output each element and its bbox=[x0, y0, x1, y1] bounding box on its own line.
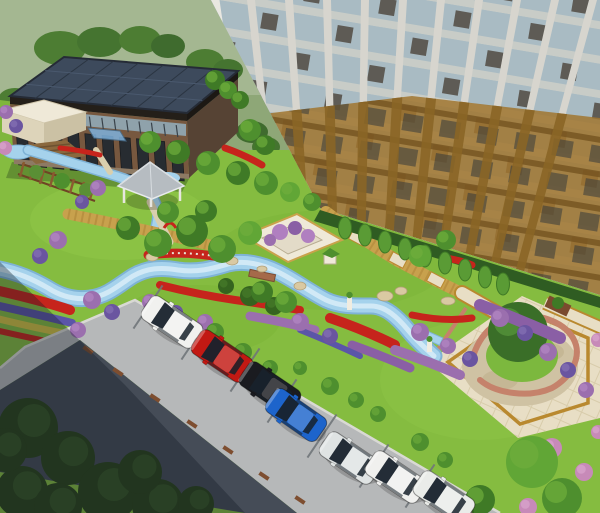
columnar-tree bbox=[339, 217, 352, 239]
tower-spandrel-panel bbox=[378, 0, 396, 16]
bush-highlight bbox=[562, 364, 570, 372]
bush-highlight bbox=[541, 345, 550, 354]
boulder bbox=[441, 297, 455, 305]
planter-flowers bbox=[288, 221, 302, 235]
tree-highlight bbox=[256, 173, 269, 186]
tower-spandrel-panel bbox=[260, 12, 278, 30]
planter-shrub bbox=[552, 297, 564, 309]
brick-window bbox=[583, 178, 600, 198]
columnar-tree bbox=[459, 259, 472, 281]
aerial-rendering bbox=[0, 0, 600, 513]
garden-lamp bbox=[347, 297, 352, 310]
bush-highlight bbox=[220, 280, 228, 288]
boulder bbox=[257, 266, 267, 272]
bush-highlight bbox=[51, 233, 60, 242]
dark-tree-highlight bbox=[190, 490, 210, 510]
garden-lamp-top bbox=[346, 292, 352, 298]
brick-window bbox=[534, 239, 557, 259]
tree-highlight bbox=[141, 133, 153, 145]
tower-spandrel-panel bbox=[367, 65, 385, 83]
tree-highlight bbox=[178, 217, 196, 235]
bush-highlight bbox=[294, 362, 301, 369]
planter-flowers bbox=[264, 234, 276, 246]
bush-highlight bbox=[76, 196, 83, 203]
tree-highlight bbox=[232, 92, 242, 102]
brick-window bbox=[401, 113, 424, 133]
tree-highlight bbox=[240, 223, 253, 236]
boulder bbox=[294, 282, 306, 290]
bush-highlight bbox=[85, 293, 94, 302]
tree-highlight bbox=[159, 203, 171, 215]
bush-highlight bbox=[519, 327, 527, 335]
rendering-viewport bbox=[0, 0, 600, 513]
bush-highlight bbox=[493, 311, 502, 320]
tree-highlight bbox=[304, 194, 314, 204]
pergola-vine bbox=[54, 173, 70, 189]
pergola-vine bbox=[29, 165, 43, 179]
canopy-blob bbox=[151, 34, 185, 58]
columnar-tree bbox=[379, 231, 392, 253]
boulder bbox=[395, 287, 407, 295]
bush-highlight bbox=[592, 334, 599, 341]
planter-flowers bbox=[301, 229, 315, 243]
bush-highlight bbox=[464, 353, 472, 361]
bush-highlight bbox=[413, 325, 422, 334]
bush-highlight bbox=[372, 408, 380, 416]
garden-lamp bbox=[427, 341, 432, 352]
bush-highlight bbox=[413, 435, 422, 444]
tree-highlight bbox=[438, 232, 449, 243]
brick-window bbox=[396, 147, 419, 167]
flower-bed-red bbox=[412, 315, 472, 319]
columnar-tree bbox=[439, 252, 452, 274]
bush-highlight bbox=[592, 426, 599, 433]
bush-highlight bbox=[577, 465, 586, 474]
bush-highlight bbox=[350, 394, 358, 402]
boulder bbox=[377, 291, 393, 301]
tree-highlight bbox=[545, 481, 567, 503]
tree-highlight bbox=[253, 283, 265, 295]
dark-tree-highlight bbox=[18, 404, 51, 437]
tree-highlight bbox=[510, 440, 539, 469]
tree-highlight bbox=[411, 247, 423, 259]
bush-highlight bbox=[323, 379, 332, 388]
tree-highlight bbox=[198, 153, 211, 166]
bush-highlight bbox=[10, 120, 17, 127]
columnar-tree bbox=[479, 266, 492, 288]
columnar-tree bbox=[497, 273, 510, 295]
tree-highlight bbox=[277, 293, 289, 305]
tree-highlight bbox=[207, 72, 218, 83]
columnar-tree bbox=[359, 224, 372, 246]
canopy-blob bbox=[77, 27, 123, 57]
bush-highlight bbox=[439, 454, 447, 462]
bush-highlight bbox=[442, 340, 450, 348]
tree-highlight bbox=[146, 231, 161, 246]
tree-highlight bbox=[241, 121, 253, 133]
bush-highlight bbox=[293, 315, 302, 324]
bush-highlight bbox=[72, 324, 80, 332]
brick-window bbox=[572, 245, 595, 265]
tree-highlight bbox=[168, 142, 181, 155]
tower-spandrel-panel bbox=[453, 10, 471, 28]
dark-tree-highlight bbox=[59, 436, 89, 466]
bush-highlight bbox=[521, 500, 530, 509]
brick-window bbox=[577, 212, 600, 232]
bush-highlight bbox=[324, 330, 332, 338]
tower-spandrel-panel bbox=[485, 50, 503, 68]
dark-tree-highlight bbox=[132, 454, 156, 478]
bush-highlight bbox=[242, 288, 252, 298]
bush-highlight bbox=[0, 106, 7, 113]
bush-highlight bbox=[92, 182, 100, 190]
tree-highlight bbox=[118, 218, 131, 231]
dark-tree-highlight bbox=[50, 488, 76, 513]
brick-window bbox=[540, 205, 563, 225]
bush-highlight bbox=[106, 306, 114, 314]
tree-highlight bbox=[228, 163, 241, 176]
tower-spandrel-panel bbox=[410, 38, 428, 56]
tower-spandrel-panel bbox=[442, 77, 460, 95]
tree-highlight bbox=[220, 82, 230, 92]
tree-highlight bbox=[282, 184, 293, 195]
bush-highlight bbox=[34, 250, 42, 258]
tree-highlight bbox=[210, 237, 225, 252]
bush-highlight bbox=[580, 384, 588, 392]
bush-highlight bbox=[199, 316, 207, 324]
tree-highlight bbox=[257, 137, 268, 148]
tower-spandrel-panel bbox=[335, 25, 353, 43]
tree-highlight bbox=[197, 202, 209, 214]
